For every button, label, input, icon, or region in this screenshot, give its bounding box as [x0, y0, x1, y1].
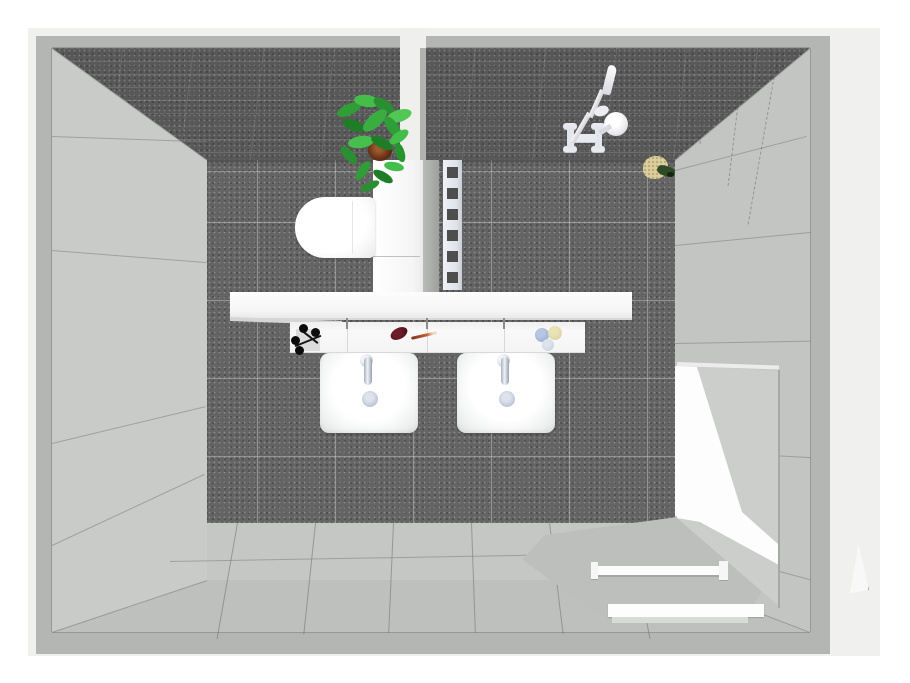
radiator-rung-gap [447, 251, 458, 262]
toilet-lid-seam [352, 201, 353, 254]
wall-base-shadow [207, 160, 675, 163]
radiator-rung-gap [447, 272, 458, 283]
soap-pale [542, 339, 554, 351]
partition-slot-side [420, 48, 426, 160]
accessory-hook-knob [311, 328, 320, 337]
accessory-hook-knob [295, 346, 304, 355]
partition-side-face [423, 160, 439, 293]
bathroom-render [0, 0, 910, 683]
radiator-rung-gap [447, 209, 458, 220]
faucet-left [364, 357, 372, 385]
scrub-brush-tip [667, 172, 674, 177]
towel-rail-bar [593, 566, 727, 575]
counter-tick [426, 318, 428, 329]
towel-rail-cap [719, 561, 728, 580]
counter-tick [346, 318, 348, 329]
door-edge [778, 370, 780, 608]
wall-shelf [230, 292, 632, 320]
radiator-rung-gap [447, 188, 458, 199]
drain-left [362, 391, 378, 407]
faucet-right [501, 357, 509, 385]
soap-yellow [548, 326, 562, 340]
radiator-rung-gap [447, 230, 458, 241]
radiator-rung-gap [447, 167, 458, 178]
drain-right [499, 391, 515, 407]
counter-tick [503, 318, 505, 329]
toilet [295, 197, 375, 258]
bath-mat-substep [612, 617, 748, 623]
accessory-hook-knob [291, 336, 300, 345]
accessory-hook-knob [299, 324, 308, 333]
frame-edge-top [52, 47, 810, 48]
towel-rail-cap [591, 562, 598, 579]
frame-edge-bottom [52, 632, 810, 633]
towel-radiator [443, 160, 462, 290]
bath-mat-step [608, 604, 764, 617]
